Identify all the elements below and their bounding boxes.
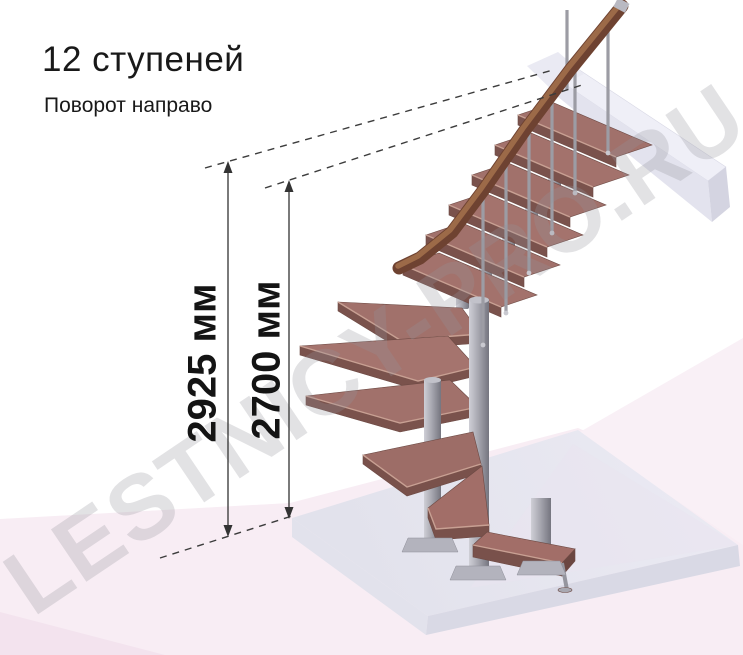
leader-line-top [205,70,553,168]
leader-line-floor [160,516,292,558]
dimension-label-top-step-height: 2700 мм [245,280,290,439]
staircase-diagram: LESTNICY-PRO.RU 12 ступеней Поворот напр… [0,0,743,655]
leader-line-step [265,84,585,188]
page-subtitle: Поворот направо [44,94,212,118]
page-title: 12 ступеней [42,40,244,80]
dimension-label-total-height: 2925 мм [181,283,226,442]
